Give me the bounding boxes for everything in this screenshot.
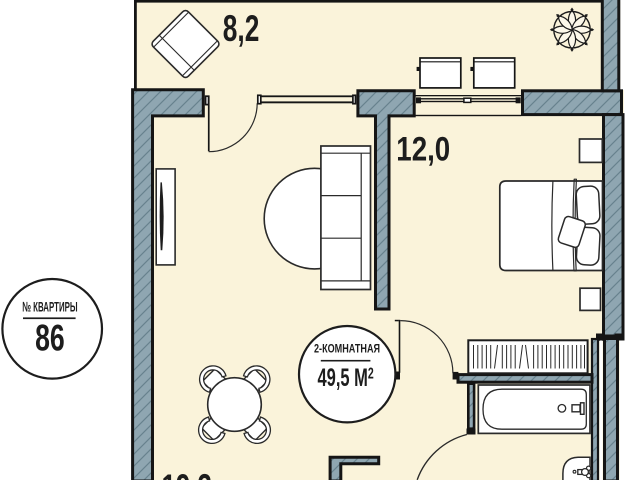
svg-text:49,5 М2: 49,5 М2 <box>318 364 374 392</box>
svg-text:8,2: 8,2 <box>223 7 260 49</box>
svg-text:19,3: 19,3 <box>162 466 212 480</box>
svg-text:2-КОМНАТНАЯ: 2-КОМНАТНАЯ <box>314 342 380 356</box>
svg-text:12,0: 12,0 <box>396 130 450 168</box>
svg-text:86: 86 <box>35 317 65 358</box>
svg-text:№ КВАРТИРЫ: № КВАРТИРЫ <box>22 300 77 315</box>
